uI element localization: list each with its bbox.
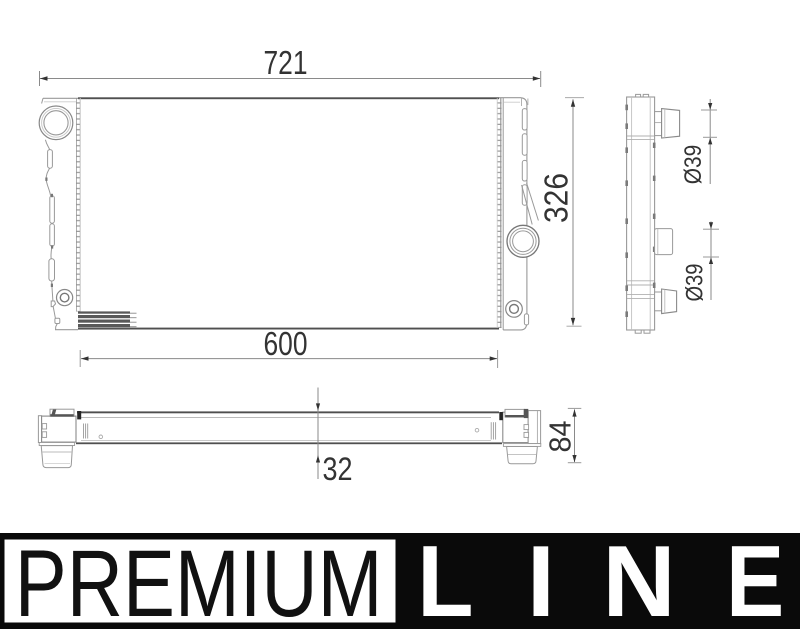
svg-text:PREMIUM: PREMIUM [15, 532, 383, 629]
svg-text:N: N [602, 524, 675, 629]
svg-text:32: 32 [323, 451, 353, 487]
svg-text:Ø39: Ø39 [680, 145, 707, 185]
svg-text:326: 326 [538, 173, 575, 223]
svg-text:600: 600 [264, 325, 308, 362]
svg-text:721: 721 [264, 44, 308, 81]
svg-text:L: L [417, 524, 473, 629]
svg-text:84: 84 [543, 421, 578, 453]
svg-text:Ø39: Ø39 [682, 264, 709, 302]
svg-text:E: E [726, 525, 784, 629]
svg-text:I: I [527, 524, 555, 629]
